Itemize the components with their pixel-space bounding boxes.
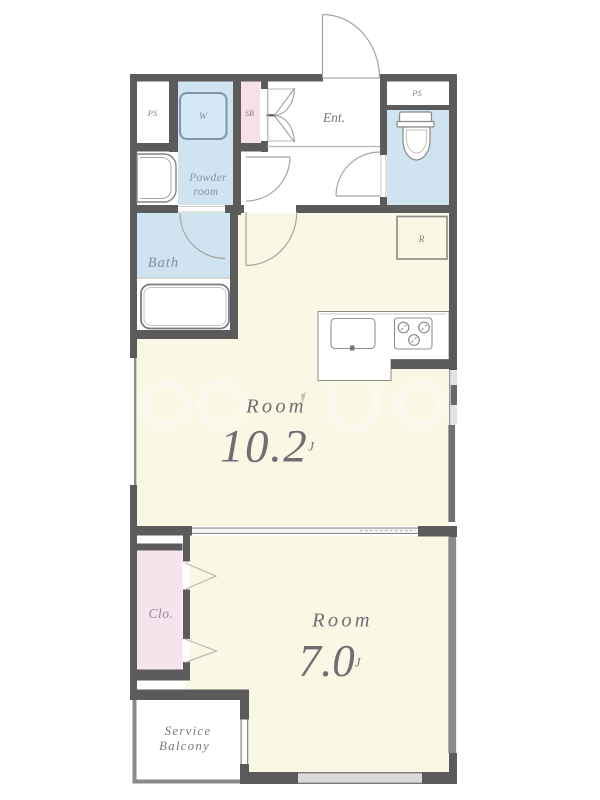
- svg-text:Ent.: Ent.: [322, 110, 345, 125]
- svg-text:Clo.: Clo.: [149, 606, 174, 621]
- svg-text:Room: Room: [245, 396, 307, 418]
- svg-text:7.0J: 7.0J: [299, 636, 362, 686]
- svg-text:Bath: Bath: [148, 255, 179, 271]
- svg-text:Powder: Powder: [188, 172, 227, 184]
- svg-text:PS: PS: [411, 88, 422, 98]
- svg-text:W: W: [199, 112, 208, 122]
- svg-text:R: R: [418, 235, 425, 245]
- svg-text:PS: PS: [147, 108, 158, 118]
- svg-text:Room: Room: [311, 610, 373, 632]
- svg-text:Balcony: Balcony: [159, 738, 210, 753]
- svg-text:room: room: [193, 186, 218, 198]
- svg-text:SB: SB: [245, 109, 254, 118]
- svg-text:Service: Service: [165, 723, 212, 738]
- svg-text:10.2J: 10.2J: [220, 421, 316, 473]
